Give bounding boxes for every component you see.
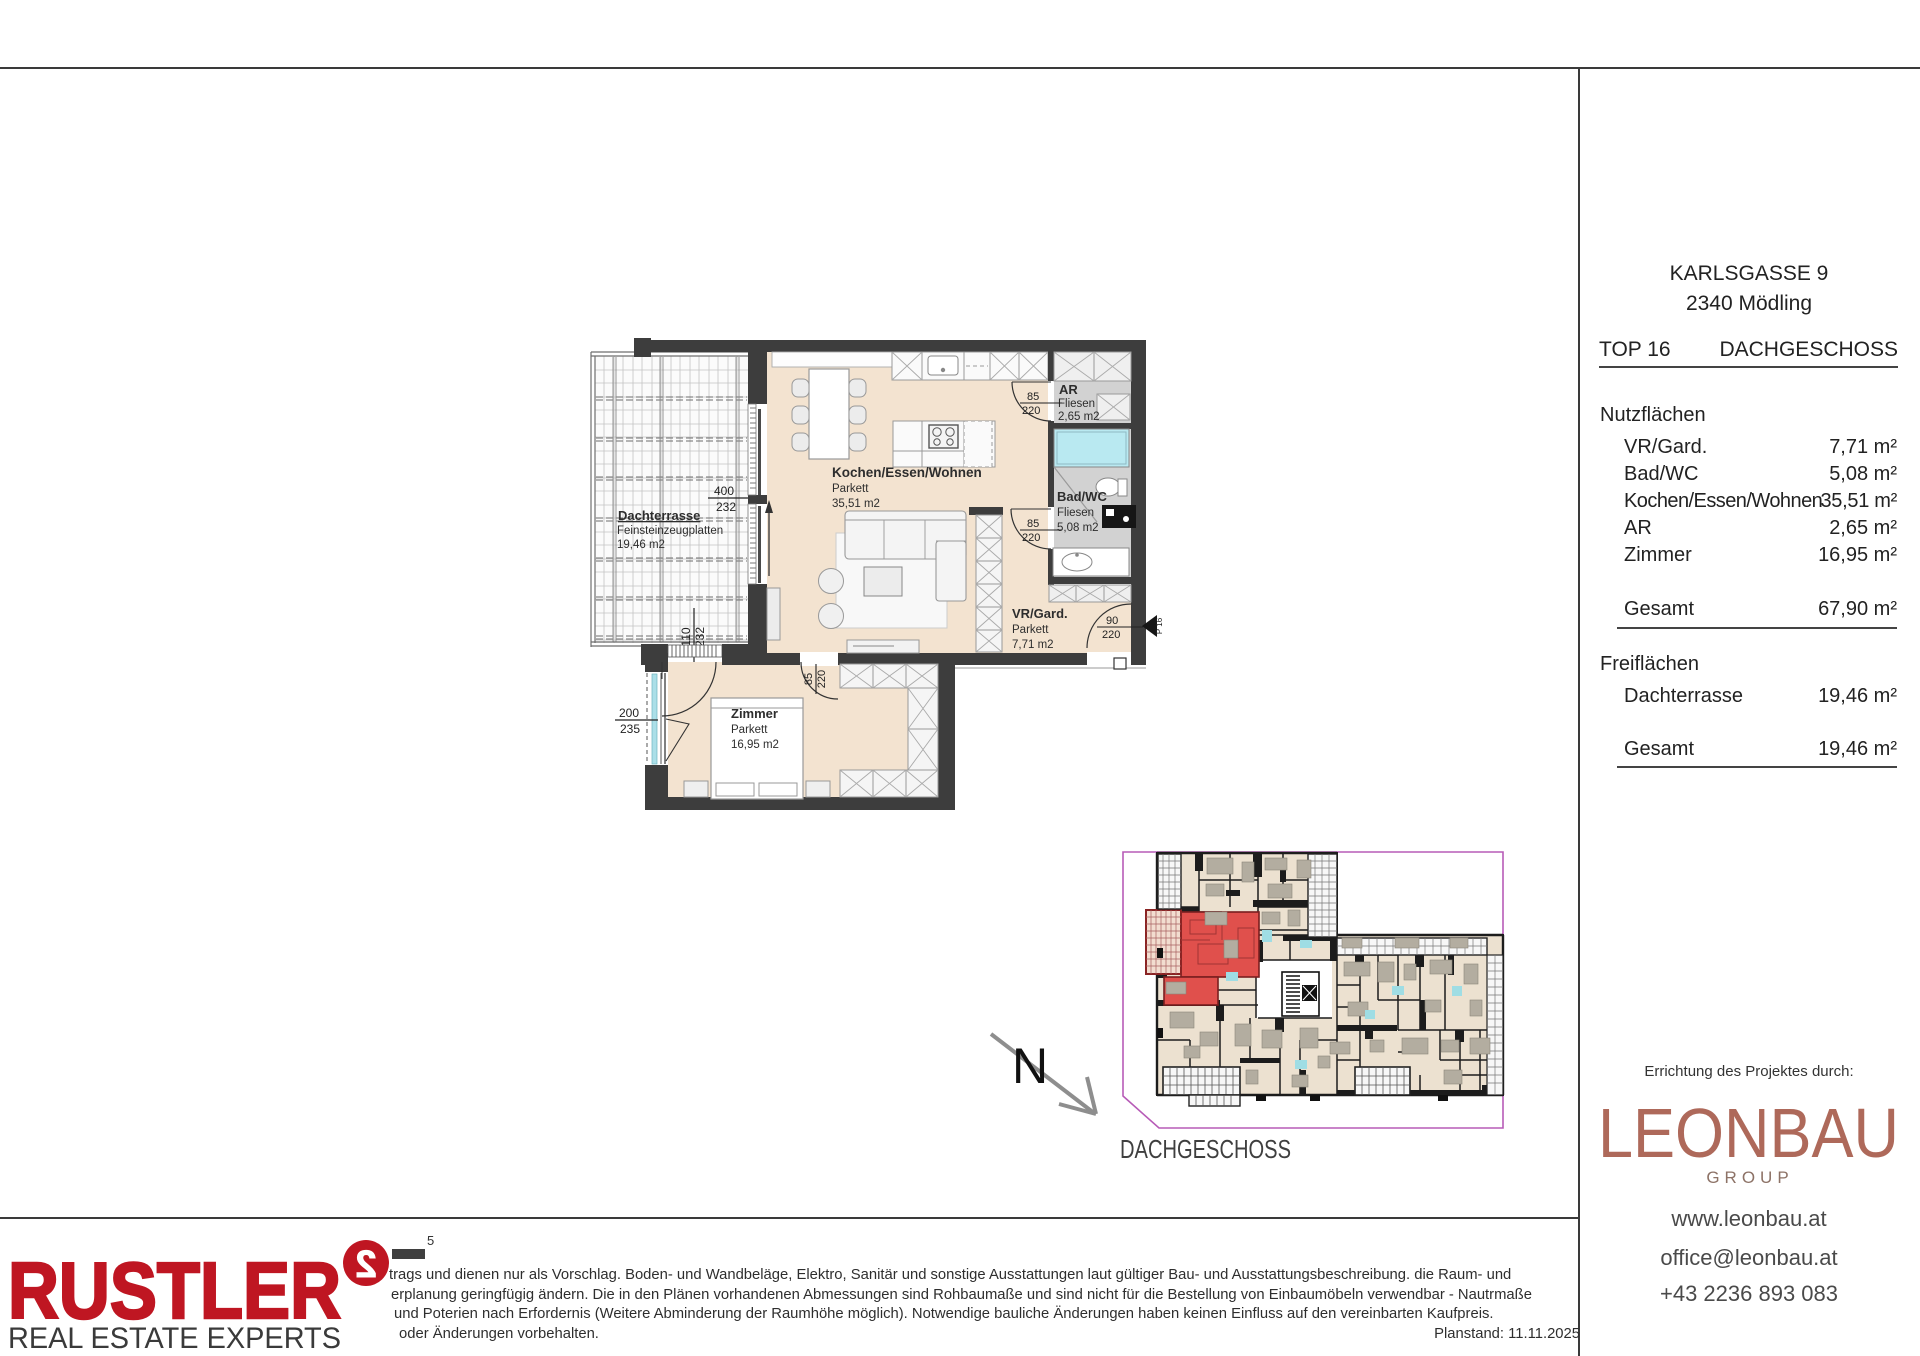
svg-text:220: 220 [816, 670, 828, 688]
svg-text:19,46 m2: 19,46 m2 [617, 539, 665, 551]
svg-text:Parkett: Parkett [832, 483, 869, 495]
svg-text:85: 85 [1027, 518, 1039, 530]
svg-text:5: 5 [427, 1233, 434, 1248]
svg-text:Fliesen: Fliesen [1057, 507, 1094, 519]
svg-text:Zimmer: Zimmer [731, 706, 778, 721]
svg-text:Bad/WC: Bad/WC [1057, 489, 1107, 504]
svg-text:7,71 m2: 7,71 m2 [1012, 639, 1054, 651]
svg-text:Dachterrasse: Dachterrasse [618, 508, 700, 523]
svg-text:220: 220 [1022, 405, 1040, 417]
svg-text:220: 220 [1102, 629, 1120, 641]
svg-text:LEONBAU: LEONBAU [1598, 1095, 1899, 1172]
svg-text:5,08 m2: 5,08 m2 [1057, 522, 1099, 534]
svg-text:P 16: P 16 [1155, 617, 1164, 634]
svg-text:DACHGESCHOSS: DACHGESCHOSS [1120, 1134, 1291, 1164]
svg-text:85: 85 [803, 673, 815, 685]
svg-text:Feinsteinzeugplatten: Feinsteinzeugplatten [617, 525, 723, 537]
svg-text:232: 232 [716, 500, 736, 514]
svg-text:2,65 m2: 2,65 m2 [1058, 411, 1100, 423]
svg-text:235: 235 [620, 722, 640, 736]
svg-text:GROUP: GROUP [1706, 1168, 1793, 1187]
svg-text:Fliesen: Fliesen [1058, 398, 1095, 410]
svg-text:REAL ESTATE EXPERTS: REAL ESTATE EXPERTS [8, 1322, 341, 1355]
svg-text:200: 200 [619, 706, 639, 720]
svg-text:232: 232 [693, 627, 707, 647]
svg-text:110: 110 [679, 627, 693, 646]
svg-text:220: 220 [1022, 532, 1040, 544]
svg-text:35,51 m2: 35,51 m2 [832, 498, 880, 510]
svg-text:Parkett: Parkett [1012, 624, 1049, 636]
svg-text:16,95 m2: 16,95 m2 [731, 739, 779, 751]
svg-text:Kochen/Essen/Wohnen: Kochen/Essen/Wohnen [832, 465, 982, 480]
svg-text:85: 85 [1027, 391, 1039, 403]
svg-text:2: 2 [355, 1244, 376, 1286]
svg-text:VR/Gard.: VR/Gard. [1012, 606, 1068, 621]
svg-text:N: N [1012, 1038, 1048, 1094]
svg-text:400: 400 [714, 484, 734, 498]
svg-text:AR: AR [1059, 382, 1078, 397]
svg-text:Parkett: Parkett [731, 724, 768, 736]
svg-text:90: 90 [1106, 615, 1118, 627]
